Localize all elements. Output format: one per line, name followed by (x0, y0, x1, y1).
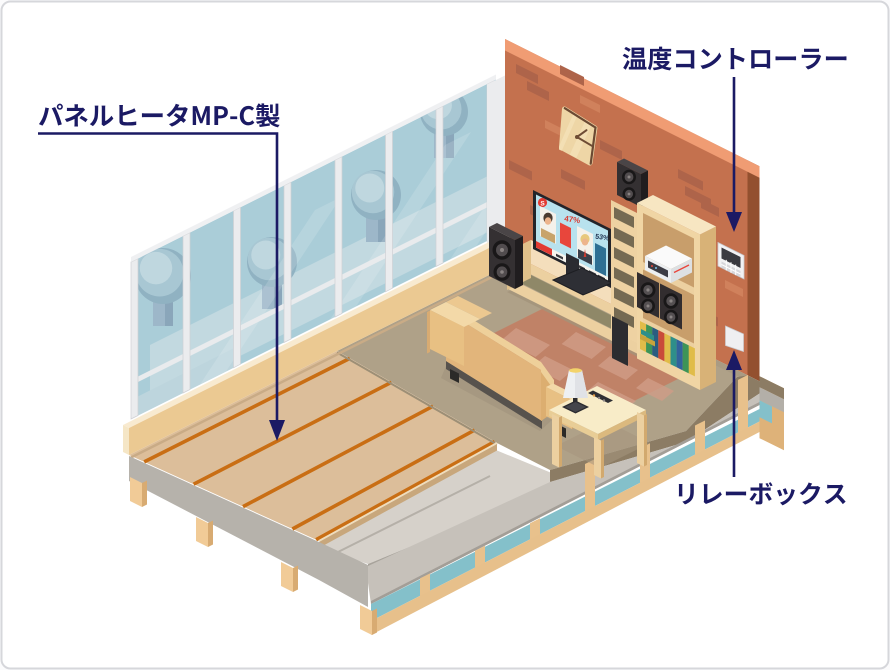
svg-text:S: S (540, 200, 545, 207)
